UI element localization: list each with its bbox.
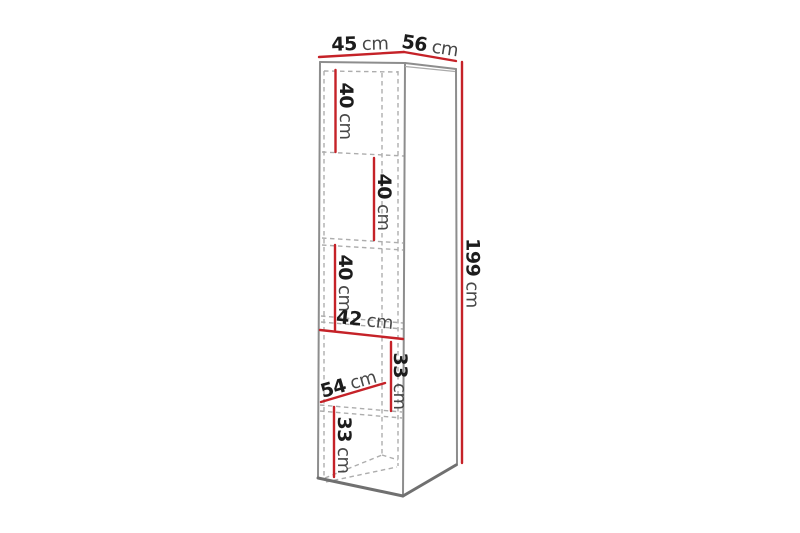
dimension-labels: 45 cm 56 cm 199 cm 40 cm 40 cm 40 cm	[318, 31, 484, 474]
bottom-back-edge-line	[382, 455, 398, 460]
compartment5-label: 33 cm	[333, 417, 355, 474]
inner-depth-label: 54 cm	[318, 366, 379, 403]
left-front-edge	[318, 62, 320, 478]
cabinet-dimension-diagram: 45 cm 56 cm 199 cm 40 cm 40 cm 40 cm	[0, 0, 800, 533]
compartment2-label: 40 cm	[373, 174, 395, 231]
depth-label: 56 cm	[400, 31, 460, 62]
shelf2-top-line	[322, 238, 403, 243]
height-label: 199 cm	[462, 238, 484, 308]
product-dimension-page: 45 cm 56 cm 199 cm 40 cm 40 cm 40 cm	[0, 0, 800, 533]
inner-width-label: 42 cm	[335, 306, 394, 334]
compartment4-label: 33 cm	[389, 353, 411, 410]
width-label: 45 cm	[331, 32, 389, 55]
bottom-front-edge	[318, 478, 403, 496]
compartment3-label: 40 cm	[334, 255, 356, 312]
shelf1-line	[322, 152, 404, 156]
top-front-edge	[320, 62, 405, 63]
back-right-edge	[456, 69, 457, 465]
top-side-edge	[405, 63, 456, 69]
bottom-side-edge	[403, 465, 456, 496]
compartment1-label: 40 cm	[335, 83, 357, 140]
interior-dashed-lines	[320, 71, 404, 482]
shelf4-bottom-line	[320, 411, 402, 418]
right-front-edge	[403, 63, 405, 496]
